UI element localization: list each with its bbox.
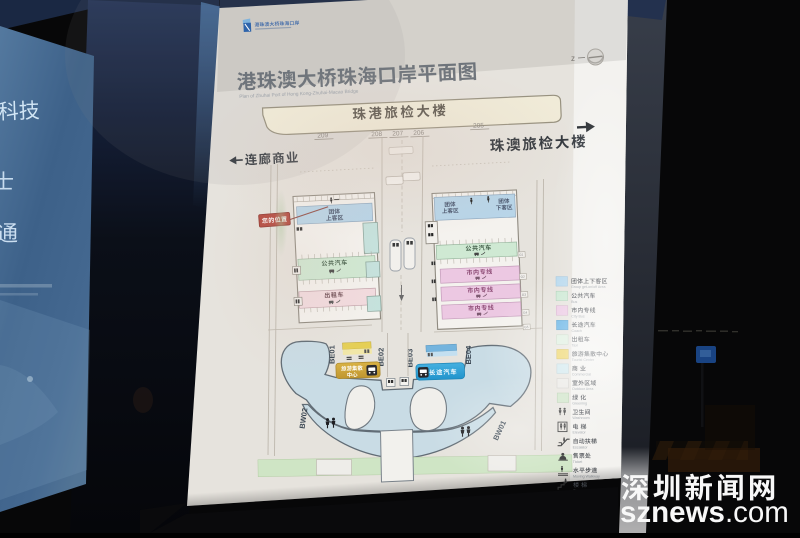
svg-text:z: z	[571, 54, 575, 63]
svg-text:G1: G1	[519, 253, 524, 257]
svg-text:BE03: BE03	[406, 349, 415, 368]
svg-text:G2: G2	[520, 275, 525, 279]
svg-text:sznews.com: sznews.com	[620, 496, 789, 529]
svg-text:BE04: BE04	[464, 345, 473, 365]
